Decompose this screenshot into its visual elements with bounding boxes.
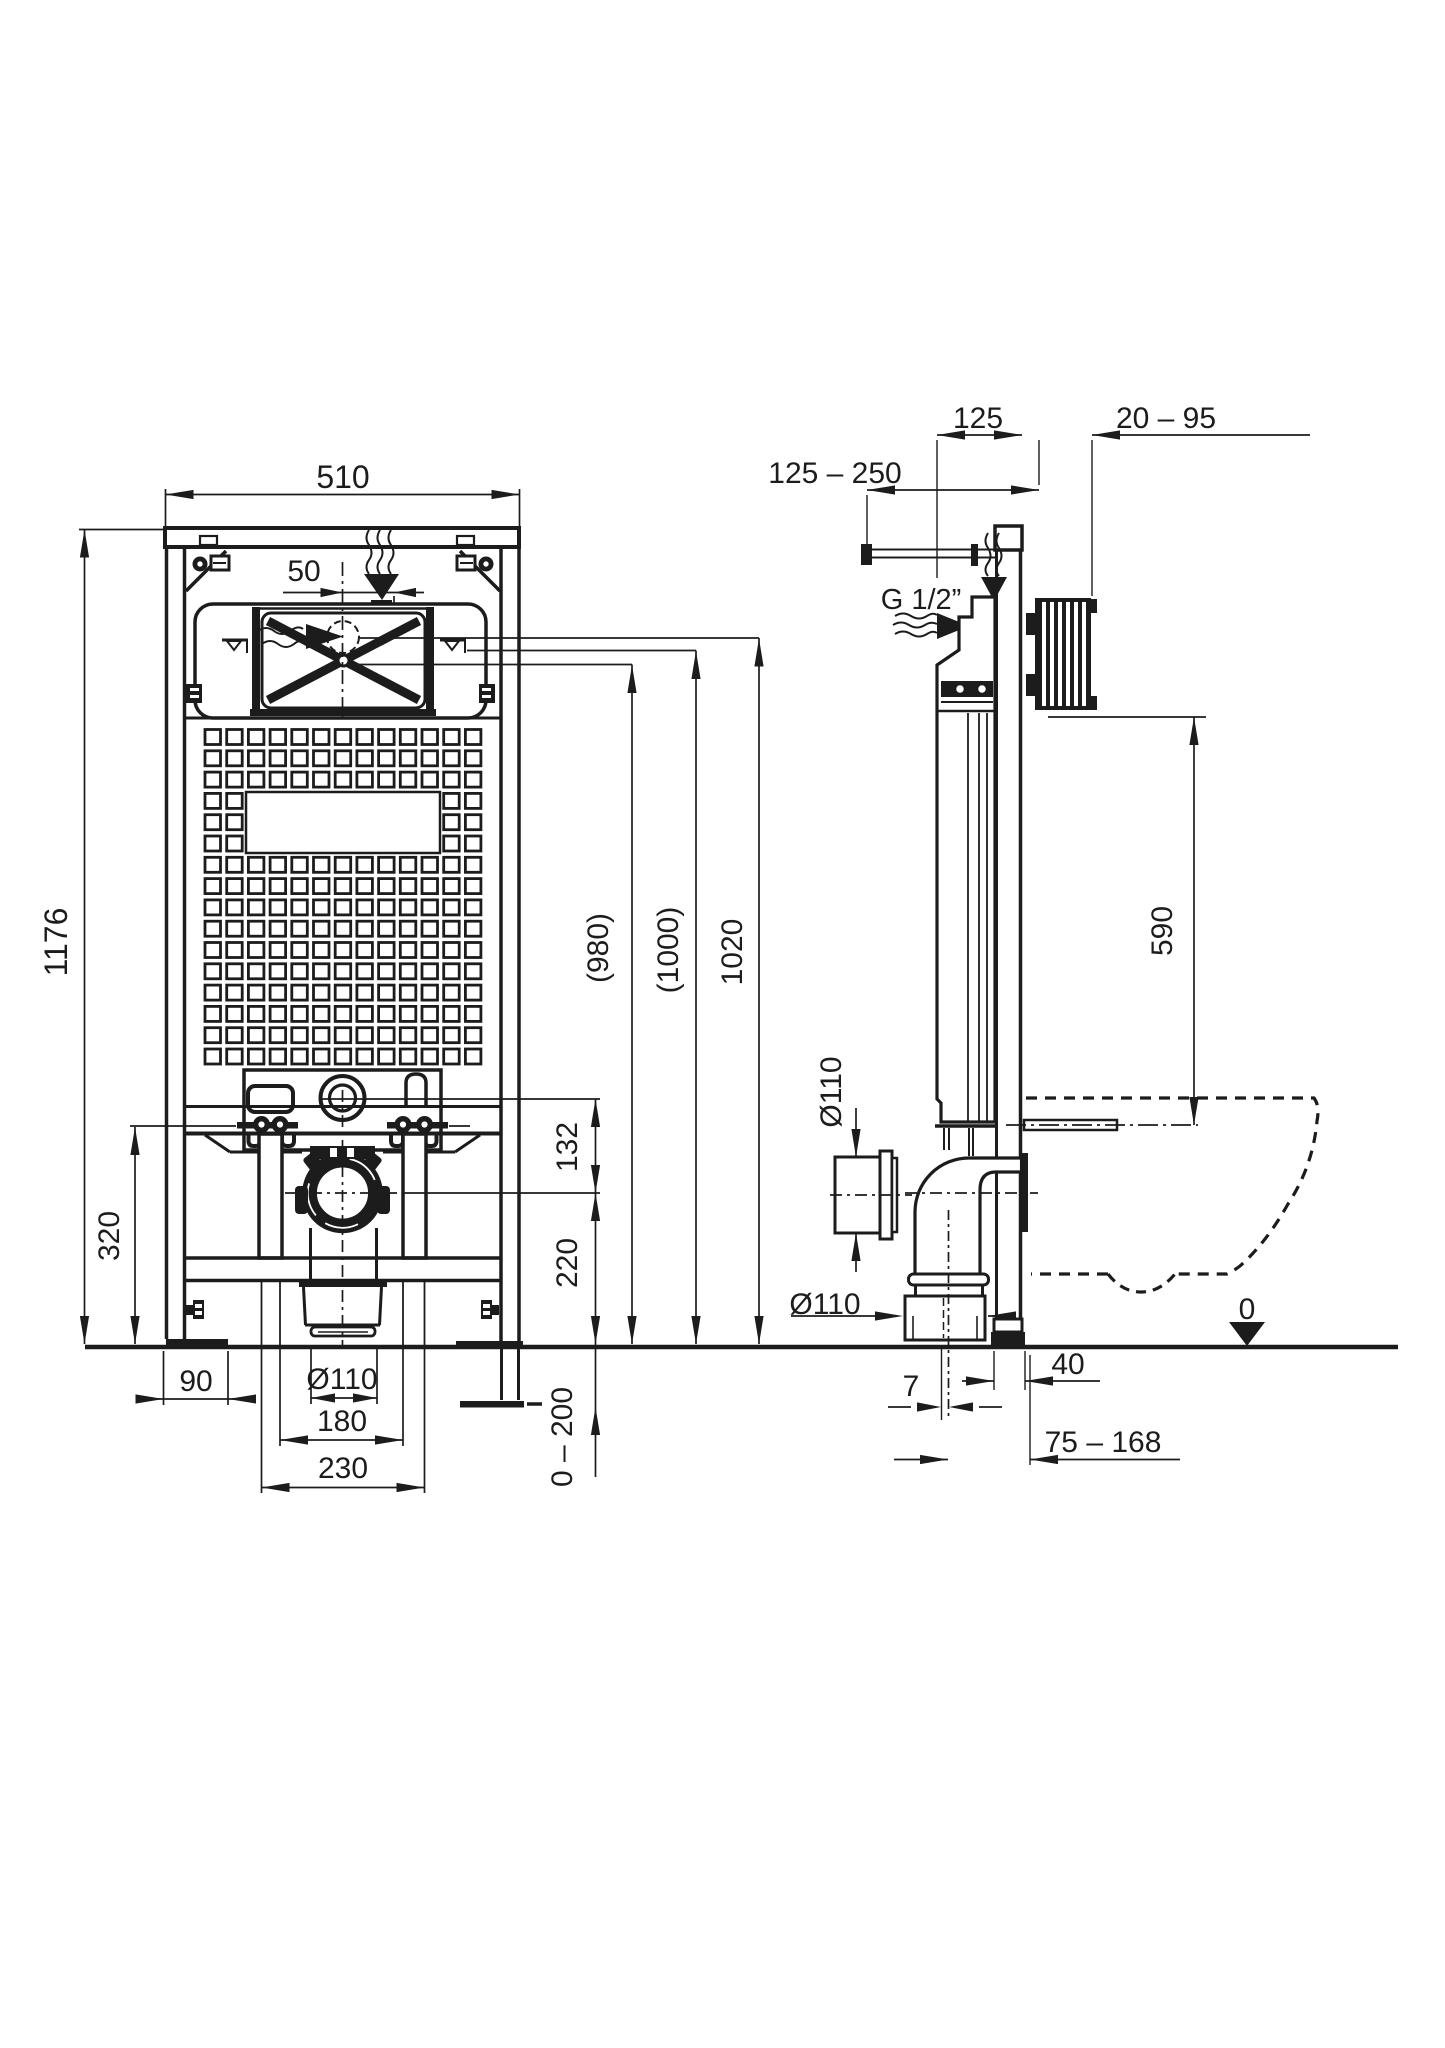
svg-text:90: 90 <box>179 1365 212 1398</box>
svg-text:75 – 168: 75 – 168 <box>1045 1426 1162 1459</box>
svg-text:510: 510 <box>316 459 369 495</box>
svg-text:7: 7 <box>903 1370 920 1403</box>
svg-text:0: 0 <box>1239 1293 1256 1326</box>
svg-text:132: 132 <box>551 1122 584 1172</box>
svg-text:(980): (980) <box>582 913 615 983</box>
svg-text:Ø110: Ø110 <box>306 1363 377 1396</box>
svg-text:Ø110: Ø110 <box>789 1288 860 1321</box>
svg-text:230: 230 <box>318 1452 368 1485</box>
svg-text:Ø110: Ø110 <box>815 1056 848 1127</box>
svg-text:G 1/2”: G 1/2” <box>881 584 962 616</box>
svg-text:(1000): (1000) <box>652 907 685 994</box>
svg-text:50: 50 <box>287 555 320 588</box>
svg-text:590: 590 <box>1146 906 1179 956</box>
svg-text:1020: 1020 <box>716 919 749 986</box>
svg-text:320: 320 <box>93 1211 126 1261</box>
svg-text:220: 220 <box>551 1238 584 1288</box>
svg-text:40: 40 <box>1051 1348 1084 1381</box>
svg-text:125 – 250: 125 – 250 <box>768 457 901 490</box>
svg-text:180: 180 <box>317 1405 367 1438</box>
svg-text:125: 125 <box>953 402 1003 435</box>
svg-text:20 – 95: 20 – 95 <box>1116 402 1216 435</box>
svg-text:1176: 1176 <box>38 908 74 977</box>
svg-text:0 – 200: 0 – 200 <box>546 1387 579 1487</box>
